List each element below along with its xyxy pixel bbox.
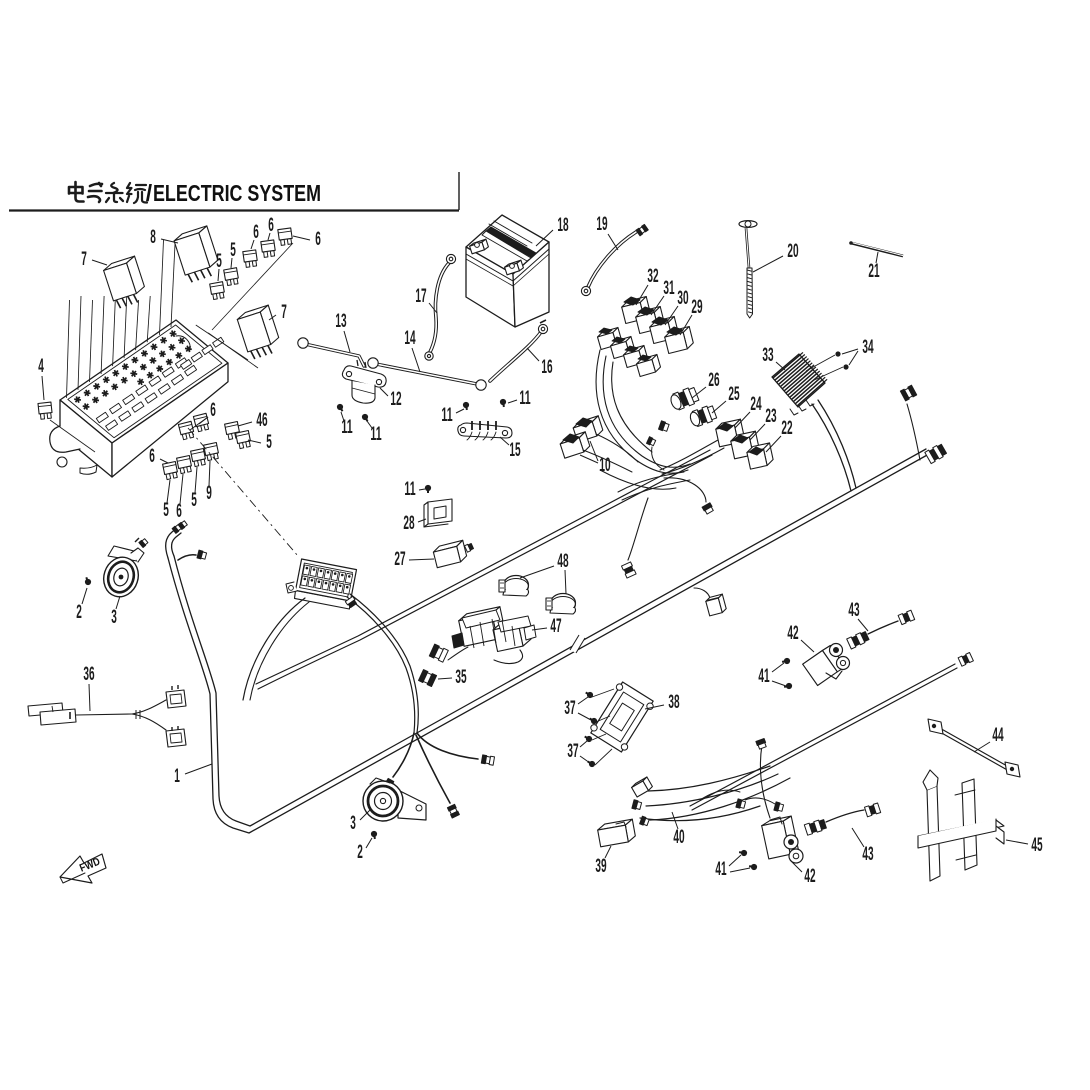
svg-text:6: 6 (253, 222, 259, 243)
svg-text:37: 37 (564, 698, 575, 719)
svg-text:16: 16 (541, 357, 552, 378)
svg-text:41: 41 (758, 666, 769, 687)
svg-text:11: 11 (519, 388, 530, 409)
svg-text:19: 19 (596, 214, 607, 235)
svg-text:8: 8 (150, 227, 156, 248)
svg-text:25: 25 (728, 384, 739, 405)
svg-text:11: 11 (404, 479, 415, 500)
svg-text:36: 36 (83, 664, 94, 685)
svg-text:5: 5 (216, 251, 222, 272)
svg-text:/: / (146, 180, 153, 206)
svg-text:11: 11 (341, 417, 352, 438)
svg-text:15: 15 (509, 440, 520, 461)
svg-text:44: 44 (992, 725, 1003, 746)
svg-text:1: 1 (174, 766, 180, 787)
svg-text:48: 48 (557, 551, 568, 572)
svg-text:43: 43 (862, 844, 873, 865)
svg-text:29: 29 (691, 297, 702, 318)
svg-text:45: 45 (1031, 835, 1042, 856)
svg-text:46: 46 (256, 410, 267, 431)
svg-text:17: 17 (415, 286, 426, 307)
svg-text:5: 5 (163, 500, 169, 521)
svg-text:47: 47 (550, 616, 561, 637)
svg-text:34: 34 (862, 337, 873, 358)
svg-text:11: 11 (370, 424, 381, 445)
svg-text:6: 6 (176, 501, 182, 522)
svg-text:2: 2 (76, 602, 82, 623)
svg-text:39: 39 (595, 856, 606, 877)
svg-text:31: 31 (663, 278, 674, 299)
svg-text:6: 6 (268, 215, 274, 236)
svg-text:20: 20 (787, 241, 798, 262)
svg-text:5: 5 (191, 490, 197, 511)
svg-text:40: 40 (673, 827, 684, 848)
svg-text:4: 4 (38, 356, 44, 377)
svg-text:42: 42 (804, 866, 815, 887)
svg-text:11: 11 (441, 405, 452, 426)
svg-text:5: 5 (230, 240, 236, 261)
svg-text:7: 7 (81, 249, 87, 270)
svg-text:6: 6 (149, 446, 155, 467)
svg-text:28: 28 (403, 513, 414, 534)
svg-text:6: 6 (210, 400, 216, 421)
svg-text:6: 6 (315, 229, 321, 250)
svg-text:3: 3 (111, 607, 117, 628)
svg-text:43: 43 (848, 600, 859, 621)
svg-text:12: 12 (390, 389, 401, 410)
svg-text:41: 41 (715, 859, 726, 880)
svg-text:24: 24 (750, 394, 761, 415)
svg-text:14: 14 (404, 328, 415, 349)
svg-text:5: 5 (266, 432, 272, 453)
svg-text:42: 42 (787, 623, 798, 644)
svg-text:23: 23 (765, 406, 776, 427)
svg-text:9: 9 (206, 483, 212, 504)
svg-text:32: 32 (647, 266, 658, 287)
svg-text:ELECTRIC SYSTEM: ELECTRIC SYSTEM (153, 180, 321, 206)
svg-text:33: 33 (762, 345, 773, 366)
svg-text:37: 37 (567, 741, 578, 762)
svg-text:38: 38 (668, 692, 679, 713)
svg-text:18: 18 (557, 215, 568, 236)
svg-text:22: 22 (781, 418, 792, 439)
svg-text:26: 26 (708, 370, 719, 391)
svg-text:21: 21 (868, 261, 879, 282)
svg-text:30: 30 (677, 288, 688, 309)
svg-text:35: 35 (455, 667, 466, 688)
svg-text:2: 2 (357, 842, 363, 863)
svg-text:27: 27 (394, 549, 405, 570)
svg-text:13: 13 (335, 311, 346, 332)
svg-text:7: 7 (281, 302, 287, 323)
svg-text:3: 3 (350, 813, 356, 834)
